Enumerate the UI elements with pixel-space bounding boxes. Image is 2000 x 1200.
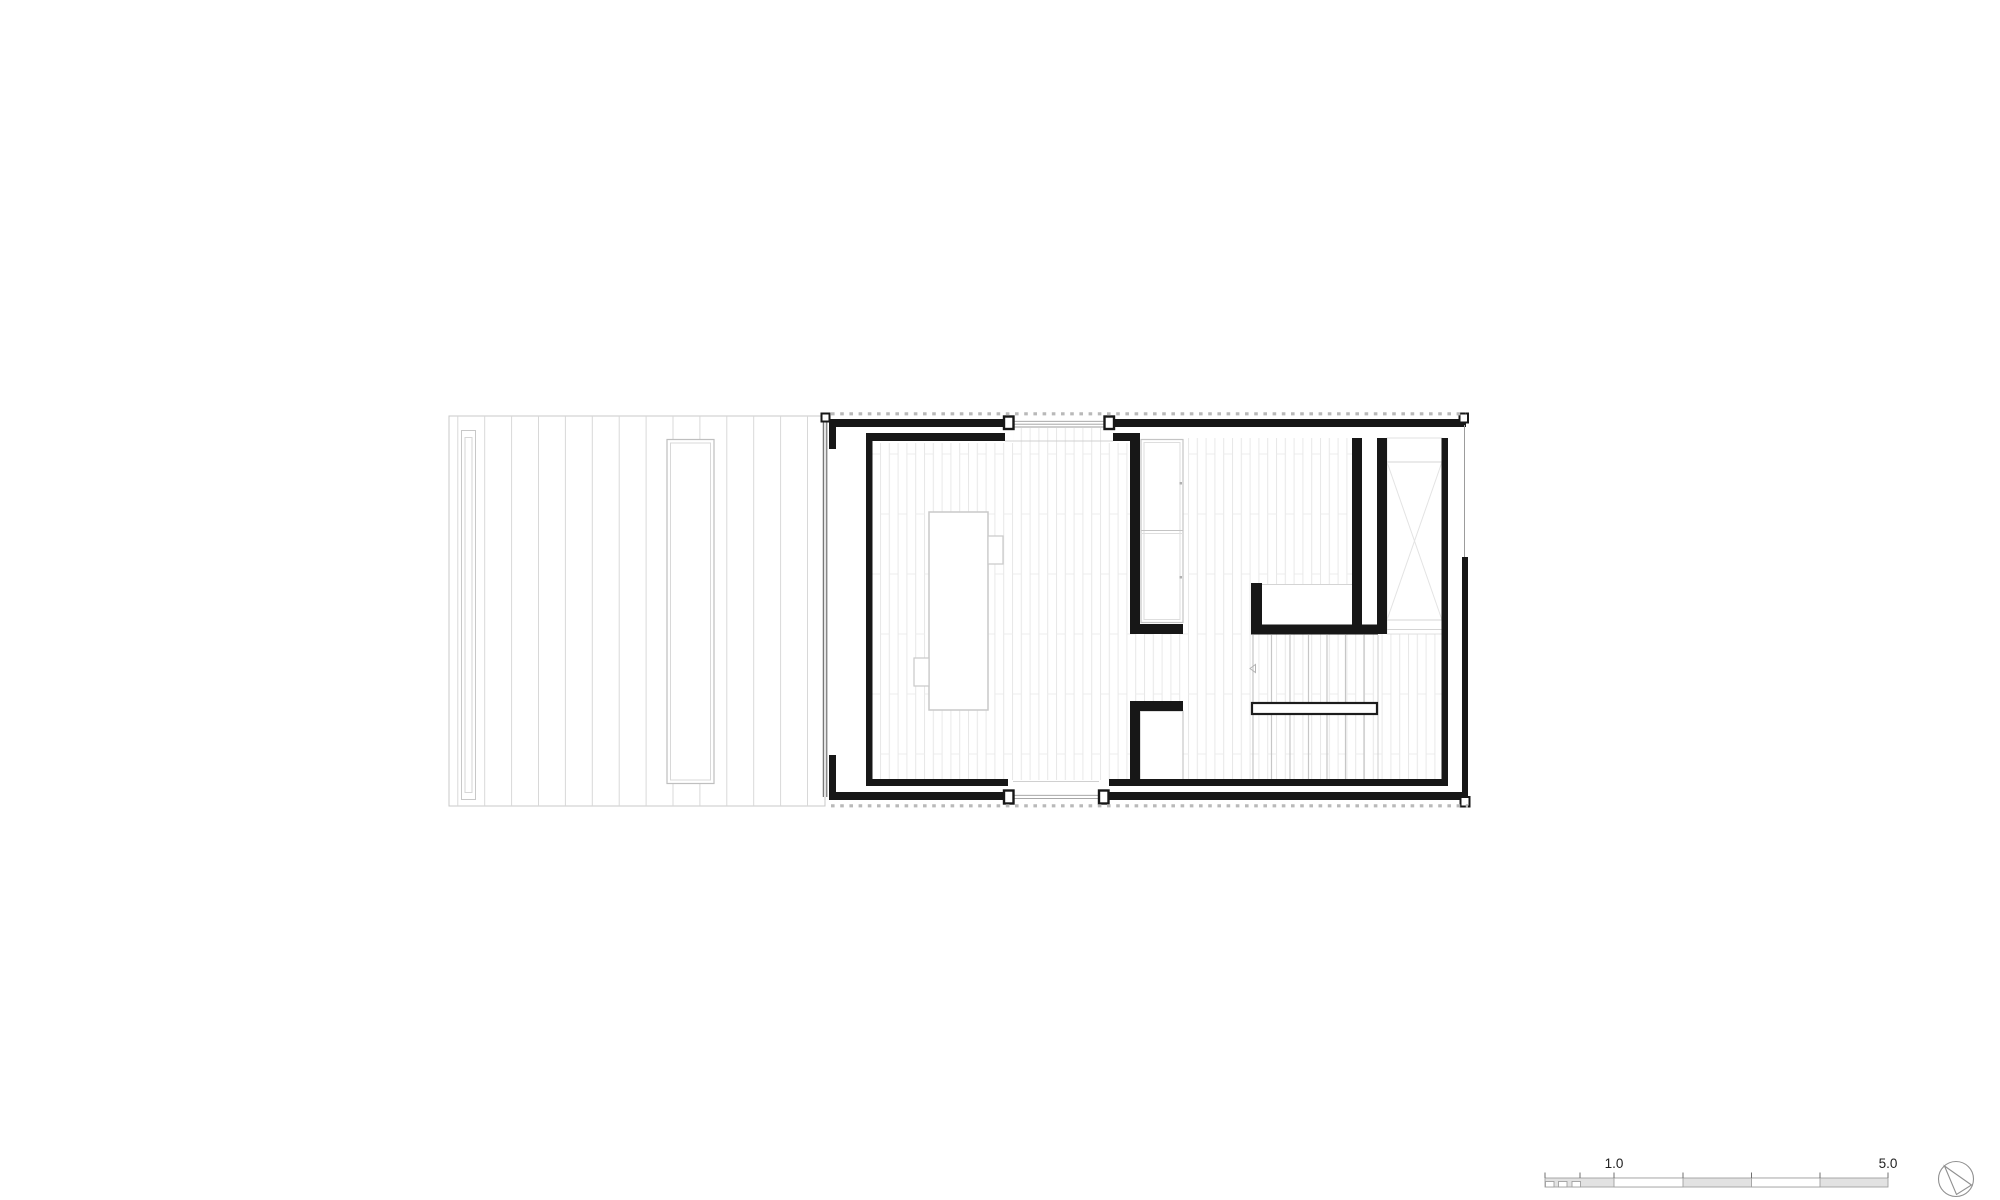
north-arrow-needle: [1945, 1166, 1972, 1195]
deck-planter: [667, 440, 714, 784]
scale-bar-segment-1-2: [1614, 1178, 1683, 1187]
floor-plan-page: 1.0 5.0: [0, 0, 2000, 1200]
scale-label-5: 5.0: [1879, 1156, 1898, 1171]
scale-label-1: 1.0: [1605, 1156, 1624, 1171]
north-arrow-icon: [1939, 1162, 1974, 1197]
wall-right-inner: [1442, 438, 1449, 779]
corner-block-northeast: [1460, 414, 1469, 423]
deck-plank-hatch: [449, 416, 825, 806]
corner-block-northwest: [822, 414, 830, 422]
bottom-window-jamb-right: [1099, 791, 1109, 804]
built-in-wardrobe: [1141, 440, 1183, 623]
floor-plan-drawing: 1.0 5.0: [0, 0, 2000, 1200]
partition-shaft-left: [1377, 438, 1387, 634]
dining-table: [929, 512, 988, 710]
niche-fill: [1262, 584, 1352, 625]
scale-bar-ticks: [1545, 1173, 1888, 1179]
north-arrow-circle: [1939, 1162, 1974, 1197]
partition-main-lower: [1130, 701, 1140, 783]
closet-room: [1140, 711, 1183, 780]
deck-bench-strip: [462, 431, 476, 800]
corner-block-southeast: [1461, 797, 1470, 807]
scale-bar: 1.0 5.0: [1545, 1156, 1897, 1187]
top-window-jamb-left: [1004, 417, 1014, 430]
partition-niche-stub: [1251, 583, 1262, 634]
wardrobe-handle-bottom: [1180, 576, 1183, 579]
rear-room-passage-floor: [1183, 624, 1251, 634]
wall-left-stub-top: [829, 419, 836, 449]
scale-bar-base: [1545, 1178, 1888, 1187]
partition-main-lower-return: [1130, 701, 1183, 711]
partition-main-upper: [1130, 433, 1140, 634]
chair-left: [914, 658, 929, 686]
stair-handrail: [1252, 703, 1377, 714]
wall-left-inner: [866, 433, 873, 780]
wall-top-outer-right: [1113, 419, 1466, 427]
wall-bottom-outer-right: [1106, 792, 1466, 800]
deck-planter-outer: [667, 440, 714, 784]
partition-main-upper-return: [1130, 624, 1183, 634]
partition-stair-top: [1251, 625, 1378, 635]
desk-niche: [1262, 584, 1352, 625]
main-room-floor: [872, 443, 1130, 780]
top-window-jamb-right: [1105, 417, 1115, 430]
shaft-outline: [1387, 438, 1442, 634]
scale-bar-segment-3-4: [1752, 1178, 1821, 1187]
wall-bottom-outer-left: [829, 792, 1005, 800]
deck-terrace: [449, 416, 825, 806]
wall-left-stub-bottom: [829, 755, 836, 800]
wall-top-outer-left: [829, 419, 1005, 427]
scale-bar-minor-box-1: [1546, 1182, 1555, 1188]
scale-bar-minor-box-2: [1559, 1182, 1568, 1188]
deck-bench-inner: [465, 438, 472, 793]
wall-bottom-inner-right: [1109, 779, 1448, 786]
wall-bottom-inner-left: [866, 779, 1008, 786]
partition-rear-room-right: [1352, 438, 1362, 634]
scale-bar-minor-box-3: [1572, 1182, 1581, 1188]
bottom-window-jamb-left: [1004, 791, 1014, 804]
wardrobe-handle-top: [1180, 482, 1183, 485]
shaft-closet: [1387, 438, 1442, 634]
chair-right: [988, 536, 1003, 564]
wall-top-inner-left: [866, 433, 1005, 441]
wall-right-outer-lower: [1462, 557, 1468, 800]
